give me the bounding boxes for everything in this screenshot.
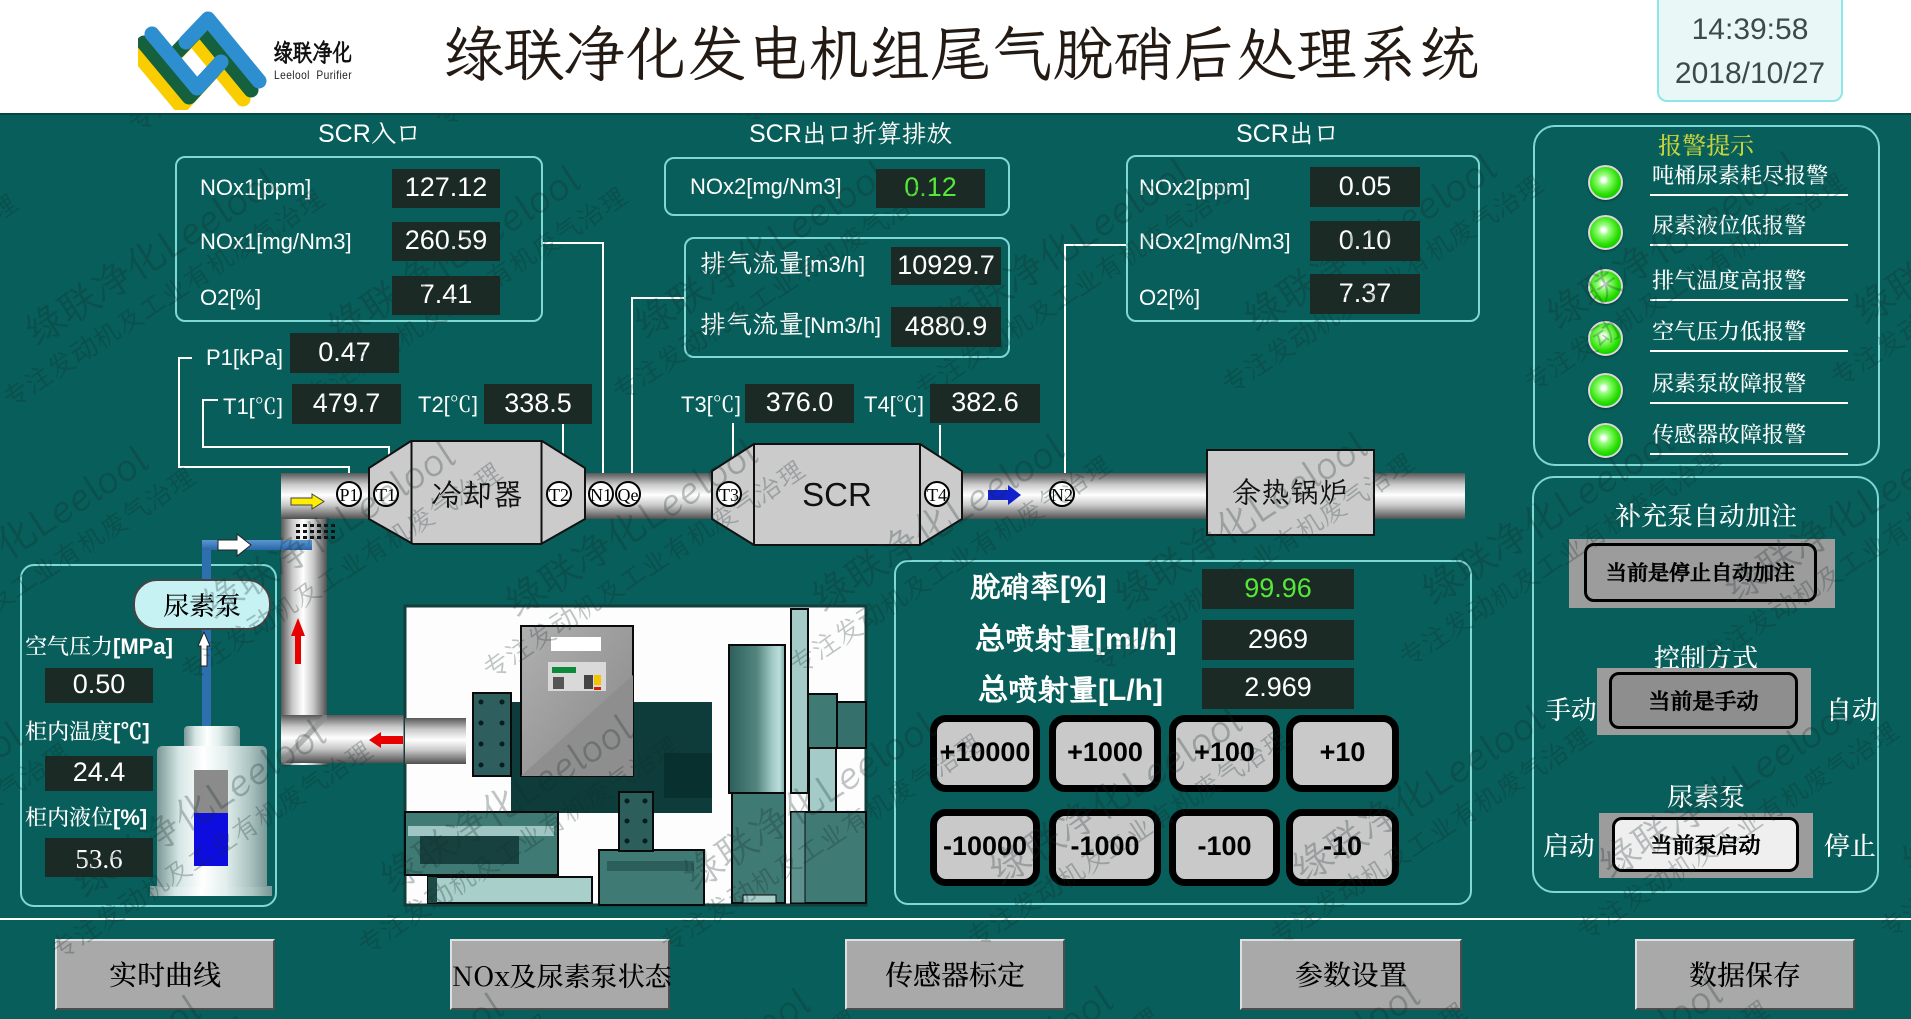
svg-text:SCR: SCR xyxy=(802,476,872,513)
svg-text:冷却器: 冷却器 xyxy=(431,473,524,514)
svg-text:余热锅炉: 余热锅炉 xyxy=(1232,473,1348,511)
